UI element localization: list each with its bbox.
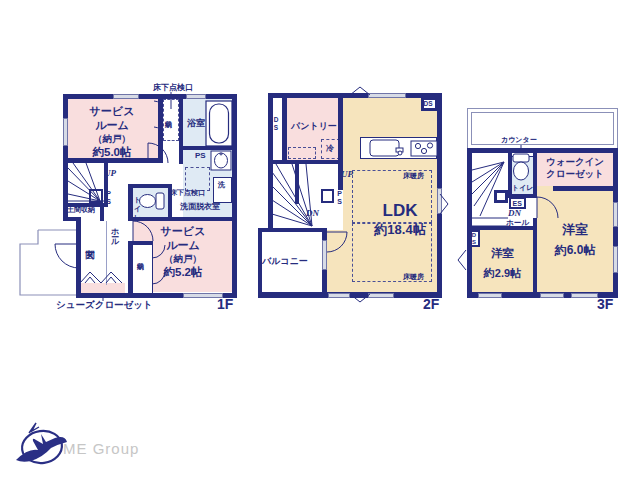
door-entrance [55,244,79,268]
stairs-2f-icon [272,164,312,226]
door-arcs [55,101,558,284]
logo-bird-icon [16,423,67,466]
floor-plan-page: 床下点検口 サービス ルーム （納戸） 約5.0帖 収納 浴室 PS 床下点検口… [0,0,640,480]
shoes-closet-hatch [80,272,122,283]
vent-chevrons [350,87,466,302]
logo-company-name: ME Group [63,440,139,457]
toilet-1f-icon [140,193,165,209]
toilet-3f-icon [513,154,529,180]
door-closet-b [152,245,165,284]
leader-ticks [103,92,521,301]
kitchen-sink-icon [370,140,403,156]
stairs-1f-icon [68,163,104,201]
washbasin-icon [211,151,231,170]
door-service-b [133,221,153,241]
porch-outline [20,230,76,295]
door-balcony [327,232,347,252]
linework-overlay [0,0,640,480]
door-washroom [148,143,168,163]
door-bedroom-b [537,197,558,218]
door-closet-a [154,101,163,136]
stairs-3f-icon [472,162,508,226]
stove-icon [411,141,437,156]
bathtub-icon [206,101,232,146]
